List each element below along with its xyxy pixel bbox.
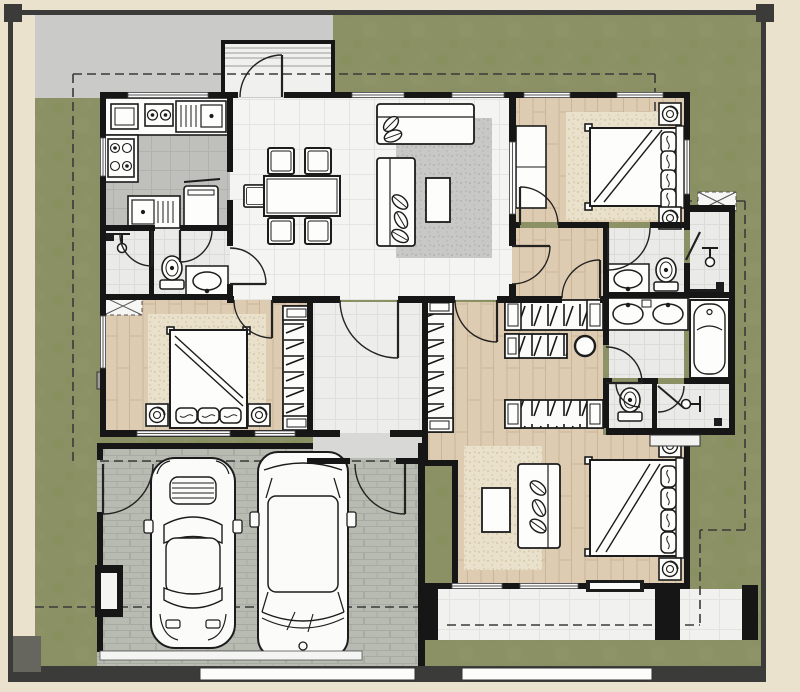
exterior-step — [650, 435, 700, 446]
garage-pillar-niche — [101, 573, 117, 609]
bedside-plant — [659, 103, 681, 125]
toilet — [654, 258, 678, 291]
stool — [575, 336, 595, 356]
garage-threshold — [100, 651, 362, 660]
terrace-floor — [437, 589, 742, 640]
wall-stub — [13, 636, 41, 672]
side-mirror — [347, 512, 356, 527]
side-mirror — [233, 520, 242, 533]
basin — [186, 266, 228, 296]
hallway-floor — [313, 302, 422, 433]
side-mirror — [144, 520, 153, 533]
headboard — [676, 126, 684, 208]
coffee-table — [482, 488, 510, 532]
car-suv-top-view — [250, 452, 356, 658]
floor-plan-svg — [0, 0, 800, 692]
floor-plan-image — [0, 0, 800, 692]
side-mirror — [250, 512, 259, 527]
wardrobe-area-floor2 — [425, 435, 458, 460]
car-sports-top-view — [144, 458, 242, 648]
bedside-plant — [659, 558, 681, 580]
corner-post — [756, 4, 774, 22]
coffee-table — [426, 178, 450, 222]
bedside-plant — [146, 404, 168, 426]
bedroom-hall-floor — [512, 228, 603, 300]
wardrobe-hanging — [283, 306, 310, 430]
dining-table — [264, 176, 340, 216]
corner-post — [4, 4, 22, 22]
headboard — [676, 458, 684, 558]
basin — [607, 264, 649, 294]
garden-gate — [462, 668, 652, 680]
bedside-plant — [248, 404, 270, 426]
driveway-gate — [200, 668, 415, 680]
